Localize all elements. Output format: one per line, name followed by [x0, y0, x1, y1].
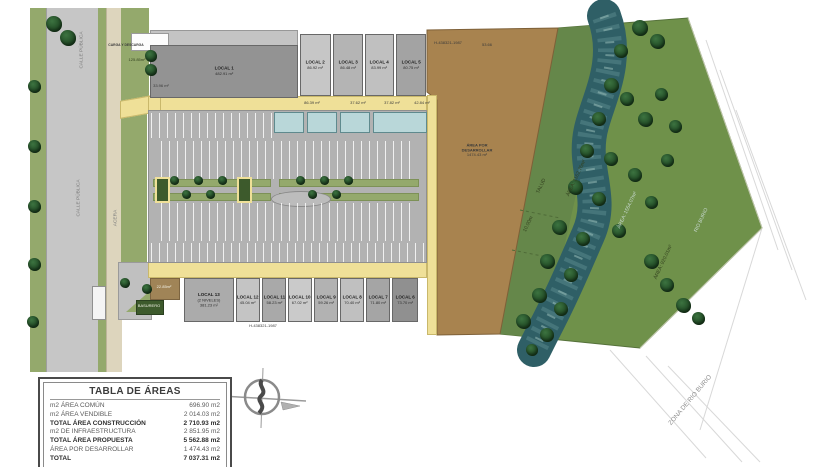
local-area: 45.04 m² [237, 300, 259, 305]
local-area: 80.75 m² [401, 65, 420, 70]
tree-icon [692, 312, 705, 325]
canopy [274, 112, 304, 133]
local-name: LOCAL 13 [198, 292, 221, 298]
survey-ref-top: H-438321-1987 [434, 41, 462, 46]
local-9: LOCAL 959.26 m² [314, 278, 338, 322]
tree-icon [142, 284, 152, 294]
sidewalk-label: ACERA [112, 210, 118, 227]
table-row: m2 ÁREA COMÚN696.90 m2 [50, 402, 220, 411]
tree-icon [332, 190, 341, 199]
local-area: 86.48 m² [338, 65, 357, 70]
local-area: 73.70 m² [395, 300, 414, 305]
tree-icon [554, 302, 568, 316]
areas-table: TABLA DE ÁREAS m2 ÁREA COMÚN696.90 m2 m2… [38, 377, 232, 467]
local-6: LOCAL 673.70 m² [392, 278, 418, 322]
kiosk [155, 177, 170, 203]
local-5: LOCAL 580.75 m² [396, 34, 426, 96]
local-name: LOCAL 4 [370, 59, 389, 65]
tree-icon [308, 190, 317, 199]
entry-patch-area-label: 22.85m² [157, 285, 172, 290]
tree-icon [296, 176, 305, 185]
tree-icon [564, 268, 578, 282]
local-8: LOCAL 870.40 m² [340, 278, 364, 322]
local-3: LOCAL 386.48 m² [333, 34, 363, 96]
table-row: TOTAL7 037.31 m2 [50, 455, 220, 464]
tree-icon [532, 288, 547, 303]
local-name: LOCAL 7 [368, 294, 387, 300]
street-name-label: CALLE PÚBLICA [75, 179, 81, 216]
site-plan: CALLE PÚBLICA CALLE PÚBLICA ACERA CARGA … [0, 0, 835, 467]
trash-label: BASURERO [138, 304, 160, 309]
street-name-label: CALLE PÚBLICA [78, 31, 84, 68]
row-label: m2 ÁREA VENDIBLE [50, 411, 112, 420]
front-green-area-label: 125.85m² [129, 58, 146, 63]
terrace-area-label: 37.82 m² [384, 101, 400, 106]
row-value: 2 014.03 m2 [184, 411, 220, 420]
row-label: m2 ÁREA COMÚN [50, 402, 105, 411]
local-7: LOCAL 771.80 m² [366, 278, 390, 322]
row-label: TOTAL ÁREA CONSTRUCCIÓN [50, 420, 146, 429]
loading-dock-label: CARGA Y DESCARGA [108, 43, 143, 47]
local-area: 58.23 m² [263, 300, 284, 305]
local-name: LOCAL 11 [263, 294, 284, 300]
develop-area-value: 1474.43 m² [462, 152, 493, 157]
tree-icon [628, 168, 642, 182]
bus-bay [92, 286, 106, 320]
patio-area-label: 33.96 m² [153, 84, 169, 89]
tree-icon [604, 78, 619, 93]
local-10: LOCAL 1067.02 m² [288, 278, 312, 322]
tree-icon [645, 196, 658, 209]
row-label: TOTAL ÁREA PROPUESTA [50, 437, 133, 446]
table-row: m2 ÁREA VENDIBLE2 014.03 m2 [50, 411, 220, 420]
tree-icon [669, 120, 682, 133]
tree-icon [592, 112, 606, 126]
local-name: LOCAL 12 [237, 294, 259, 300]
tree-icon [661, 154, 674, 167]
tree-icon [28, 80, 41, 93]
row-value: 696.90 m2 [189, 402, 220, 411]
canopy [373, 112, 427, 133]
walkway-bottom [148, 262, 427, 278]
local-name: LOCAL 3 [338, 59, 357, 65]
local-name: LOCAL 5 [401, 59, 420, 65]
local-area: 482.91 m² [214, 72, 233, 77]
tree-icon [526, 344, 538, 356]
tree-icon [344, 176, 353, 185]
terrace-area-label: 86.39 m² [304, 101, 320, 106]
tree-icon [28, 200, 41, 213]
tree-icon [576, 232, 590, 246]
row-value: 1 474.43 m2 [184, 446, 220, 455]
tree-icon [516, 314, 531, 329]
parking-stalls [161, 222, 416, 241]
local-area: 70.40 m² [342, 300, 361, 305]
local-name: LOCAL 8 [342, 294, 361, 300]
canopy [340, 112, 370, 133]
kiosk [237, 177, 252, 203]
row-value: 5 562.88 m2 [183, 437, 220, 446]
tree-icon [632, 20, 648, 36]
local-area: 86.92 m² [306, 65, 325, 70]
tree-icon [46, 16, 62, 32]
areas-table-title: TABLA DE ÁREAS [50, 385, 220, 400]
tree-icon [660, 278, 674, 292]
tree-icon [320, 176, 329, 185]
row-label: ÁREA POR DESARROLLAR [50, 446, 133, 455]
tree-icon [145, 64, 157, 76]
tree-icon [120, 278, 130, 288]
tree-icon [604, 152, 618, 166]
row-label: m2 DE INFRAESTRUCTURA [50, 428, 136, 437]
tree-icon [194, 176, 203, 185]
local-area: 83.99 m² [370, 65, 389, 70]
tree-icon [60, 30, 76, 46]
tree-icon [540, 254, 555, 269]
tree-icon [650, 34, 665, 49]
local-name: LOCAL 6 [395, 294, 414, 300]
local-4: LOCAL 483.99 m² [365, 34, 394, 96]
terrace-area-label: 42.84 m² [414, 101, 430, 106]
tree-icon [592, 192, 606, 206]
terrace-area-label: 37.62 m² [350, 101, 366, 106]
local-2: LOCAL 286.92 m² [300, 34, 331, 96]
local-1: LOCAL 1482.91 m² [150, 45, 298, 98]
tree-icon [620, 92, 634, 106]
canopy [307, 112, 337, 133]
table-row: TOTAL ÁREA CONSTRUCCIÓN2 710.93 m2 [50, 420, 220, 429]
row-value: 2 710.93 m2 [183, 420, 220, 429]
parking-stalls [151, 113, 273, 138]
local-area: 71.80 m² [368, 300, 387, 305]
frontage-green-mid [121, 112, 147, 262]
parking-stalls [161, 203, 416, 222]
local-area: 59.26 m² [316, 300, 335, 305]
local-area: 381.23 m² [198, 303, 221, 308]
tree-icon [28, 140, 41, 153]
tree-icon [676, 298, 691, 313]
table-row: TOTAL ÁREA PROPUESTA5 562.88 m2 [50, 437, 220, 446]
tree-icon [170, 176, 179, 185]
tree-icon [540, 328, 554, 342]
table-row: ÁREA POR DESARROLLAR1 474.43 m2 [50, 446, 220, 455]
local-12: LOCAL 1245.04 m² [236, 278, 260, 322]
local-sub: (2 NIVELES) [198, 298, 221, 303]
tree-icon [218, 176, 227, 185]
local-11: LOCAL 1158.23 m² [262, 278, 286, 322]
table-row: m2 DE INFRAESTRUCTURA2 851.95 m2 [50, 428, 220, 437]
tree-icon [580, 144, 594, 158]
tree-icon [182, 190, 191, 199]
tree-icon [638, 112, 653, 127]
tree-icon [552, 220, 567, 235]
service-band [150, 30, 298, 46]
compass-rose [222, 366, 306, 430]
survey-dim-top: 53.66 [482, 43, 492, 48]
local-area: 67.02 m² [289, 300, 311, 305]
walkway-right [427, 95, 437, 335]
local-name: LOCAL 9 [316, 294, 335, 300]
local-13: LOCAL 13(2 NIVELES)381.23 m² [184, 278, 234, 322]
tree-icon [145, 50, 157, 62]
row-value: 7 037.31 m2 [183, 455, 220, 464]
row-label: TOTAL [50, 455, 71, 464]
tree-icon [28, 258, 41, 271]
survey-ref-bottom: H-438321-1987 [249, 324, 277, 329]
tree-icon [27, 316, 39, 328]
local-name: LOCAL 10 [289, 294, 311, 300]
north-arrow-icon [259, 380, 263, 413]
row-value: 2 851.95 m2 [184, 428, 220, 437]
tree-icon [655, 88, 668, 101]
tree-icon [206, 190, 215, 199]
parking-stalls [161, 141, 416, 160]
local-name: LOCAL 2 [306, 59, 325, 65]
tree-icon [614, 44, 628, 58]
parking-stalls [151, 243, 424, 262]
